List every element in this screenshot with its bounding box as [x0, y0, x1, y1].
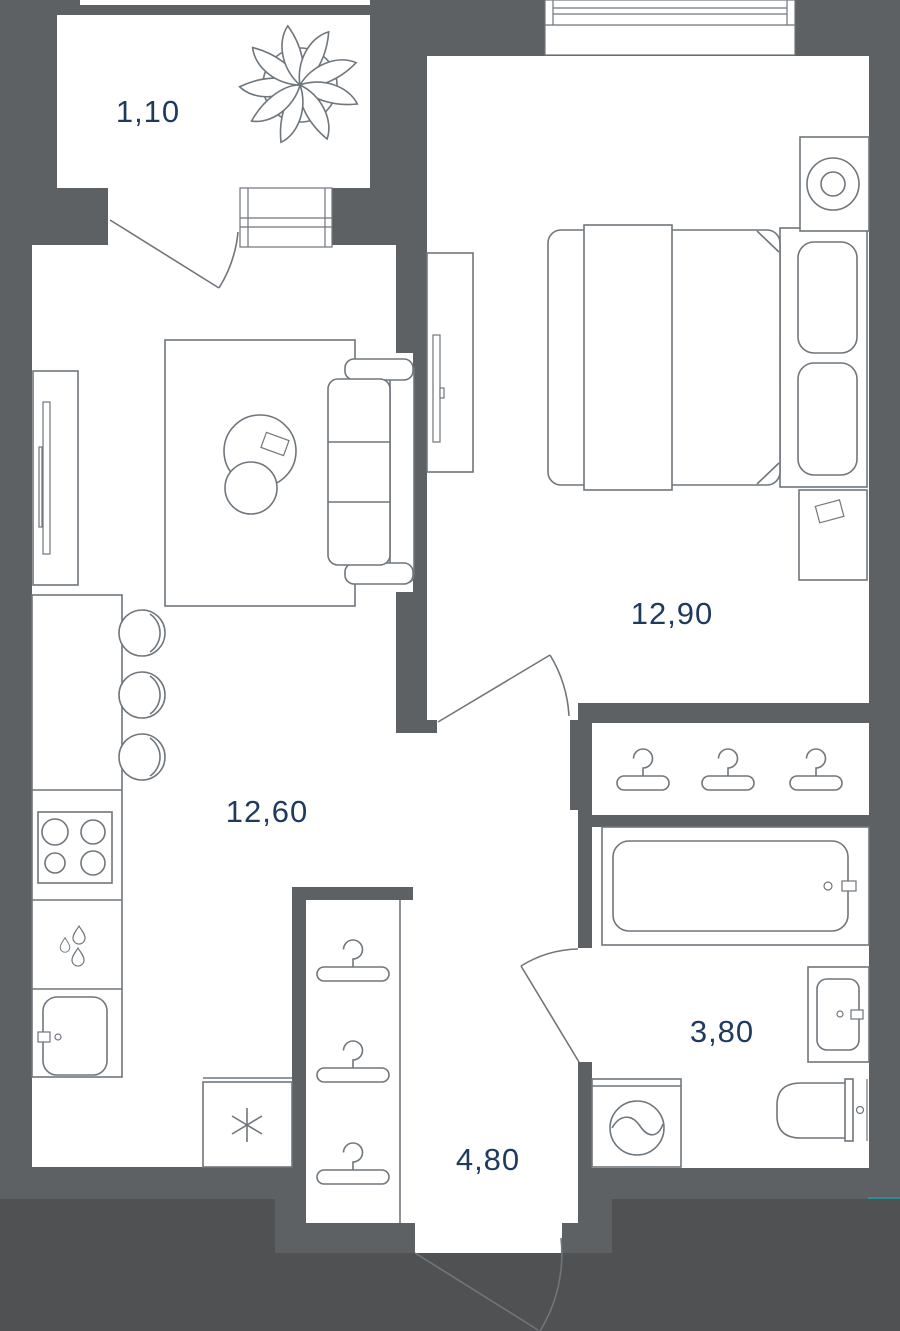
hallway-mid: [413, 887, 578, 900]
balcony-window-icon: [240, 188, 332, 247]
room-label-bedroom: 12,90: [631, 596, 714, 632]
tv-stand-icon: [33, 371, 78, 585]
room-closet: [592, 723, 869, 815]
fridge-icon: [203, 1078, 292, 1167]
floor-plan: 1,10 12,90 12,60 3,80 4,80: [0, 0, 900, 1331]
room-label-bathroom: 3,80: [690, 1014, 754, 1050]
balcony-doorway: [108, 188, 240, 245]
hallway-upper: [396, 733, 570, 887]
room-label-balcony: 1,10: [116, 94, 180, 130]
room-label-hallway: 4,80: [456, 1142, 520, 1178]
bedroom-doorway: [437, 720, 570, 733]
bathroom-doorway: [578, 948, 592, 1062]
room-label-kitchen-living: 12,60: [226, 794, 309, 830]
floor-plan-drawing: [0, 0, 900, 1331]
sofa-icon: [328, 359, 414, 584]
hallway-upper-sliver: [570, 810, 578, 887]
room-balcony-glazing: [80, 0, 370, 5]
entrance-doorway: [415, 1223, 562, 1253]
bar-stools-icon: [119, 610, 165, 780]
bedroom-closet-wall: [578, 703, 869, 723]
washing-machine-icon: [592, 1079, 681, 1167]
window-icon: [545, 0, 795, 55]
vanity-sink-icon: [808, 967, 869, 1062]
tv-stand-bedroom-icon: [427, 253, 473, 472]
floor-lamp-icon: [800, 137, 869, 231]
toilet-icon: [777, 1079, 867, 1141]
